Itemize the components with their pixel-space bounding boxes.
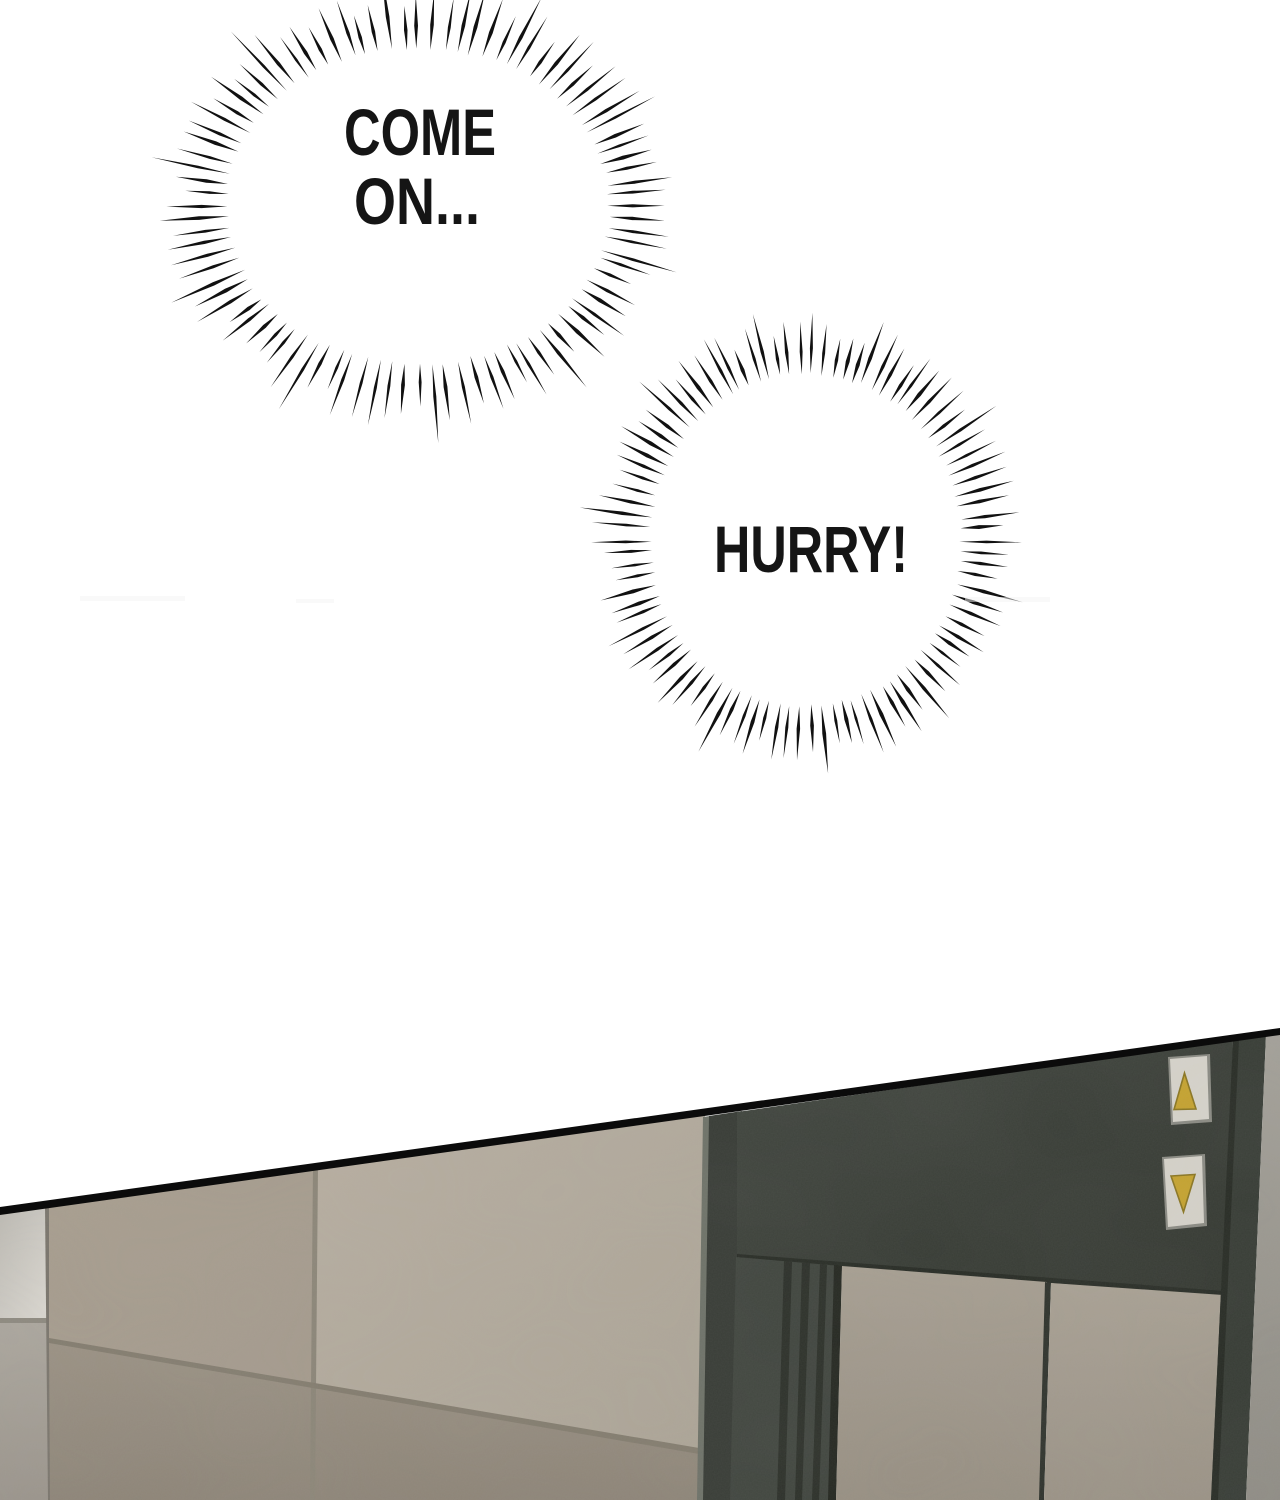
svg-text:HURRY!: HURRY! [714, 512, 908, 586]
svg-text:ON...: ON... [354, 164, 480, 238]
svg-text:COME: COME [344, 95, 496, 169]
